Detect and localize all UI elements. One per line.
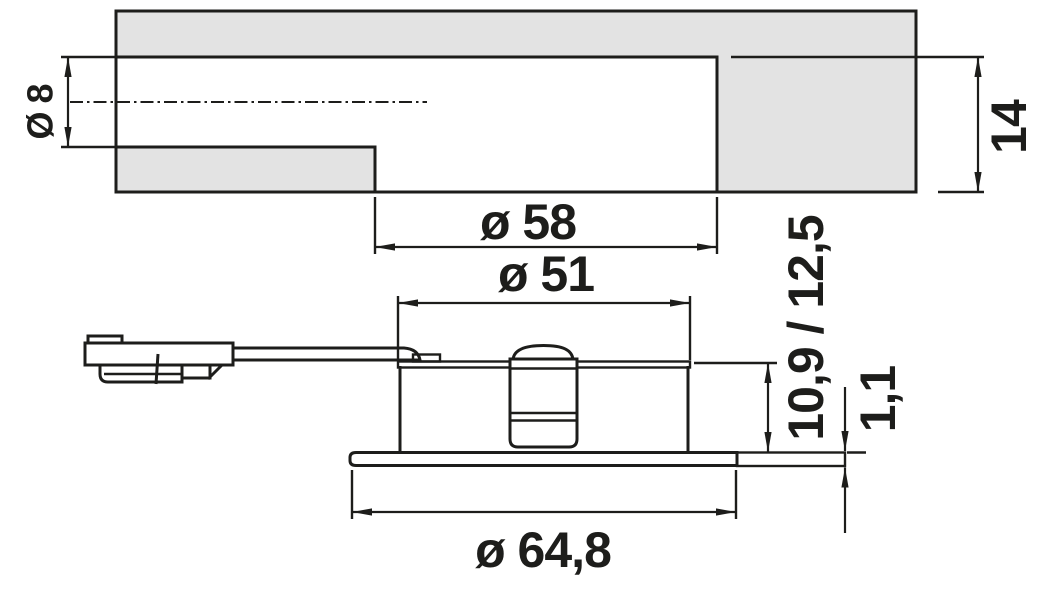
panel-section-view	[70, 11, 916, 192]
dim-label-flange-diameter: ø 64,8	[475, 522, 611, 578]
dome-lens	[513, 346, 573, 360]
dim-label-rim-thickness: 1,1	[850, 366, 906, 433]
cable	[233, 348, 420, 360]
technical-drawing-canvas: Ø 8 ø 58 14	[0, 0, 1048, 589]
led-module-housing	[510, 359, 577, 447]
dim-label-channel-diameter: Ø 8	[20, 84, 61, 139]
plug-pin	[156, 354, 158, 384]
power-plug	[85, 336, 233, 384]
dim-label-recess-depth: 10,9 / 12,5	[778, 215, 834, 440]
bezel-flange	[350, 453, 737, 466]
dim-label-bore-depth: 14	[981, 99, 1037, 154]
plug-main-body	[85, 343, 233, 365]
dim-label-bore-diameter: ø 58	[480, 194, 576, 250]
diagram-svg: Ø 8 ø 58 14	[0, 0, 1048, 589]
dim-label-body-diameter: ø 51	[498, 246, 594, 302]
